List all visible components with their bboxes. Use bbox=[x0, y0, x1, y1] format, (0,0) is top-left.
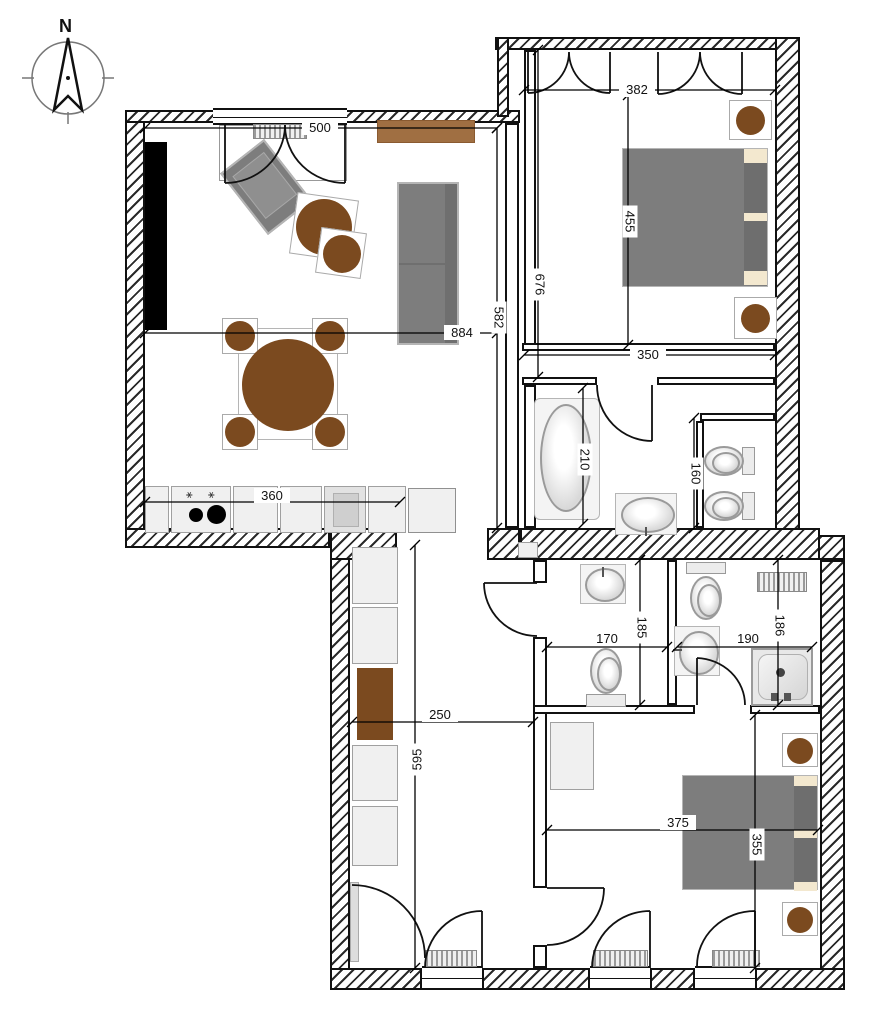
floor-plan: N bbox=[0, 0, 881, 1024]
door-arc bbox=[597, 385, 652, 441]
dimension-lines bbox=[140, 45, 823, 973]
dim-kitchen-counter: 360 bbox=[254, 488, 290, 503]
door-arc bbox=[547, 888, 604, 945]
dim-bathroom-height: 210 bbox=[578, 444, 593, 476]
wardrobe-door-arc bbox=[528, 52, 610, 93]
dim-shower-room-width: 190 bbox=[730, 631, 766, 646]
dim-living-window: 500 bbox=[302, 120, 338, 135]
dim-bedroom1-bed: 455 bbox=[623, 206, 638, 238]
dim-bedroom2-bed: 355 bbox=[750, 829, 765, 861]
dim-bedroom2-width: 375 bbox=[660, 815, 696, 830]
door-arc bbox=[484, 583, 537, 636]
dim-bedroom1-bottom: 350 bbox=[630, 347, 666, 362]
plan-linework bbox=[0, 0, 881, 1024]
dim-wc-height: 160 bbox=[689, 458, 704, 490]
dim-living-height: 582 bbox=[492, 302, 507, 334]
wardrobe-door-arc bbox=[658, 52, 742, 94]
dim-bedroom1-top: 382 bbox=[619, 82, 655, 97]
dim-hall-height: 595 bbox=[410, 744, 425, 776]
door-arc bbox=[697, 658, 745, 705]
dim-shower-room-height: 186 bbox=[773, 610, 788, 642]
window-swing-arc bbox=[425, 911, 482, 968]
window-swing-arc bbox=[592, 911, 650, 968]
door-arc bbox=[352, 885, 425, 958]
dim-bath-small-width: 170 bbox=[589, 631, 625, 646]
dim-bath-small-height: 185 bbox=[635, 612, 650, 644]
dim-living-width: 884 bbox=[444, 325, 480, 340]
door-arc bbox=[225, 125, 285, 183]
dim-hall-width: 250 bbox=[422, 707, 458, 722]
window-swing-arc bbox=[697, 911, 755, 966]
dim-bedroom1-height: 676 bbox=[533, 269, 548, 301]
